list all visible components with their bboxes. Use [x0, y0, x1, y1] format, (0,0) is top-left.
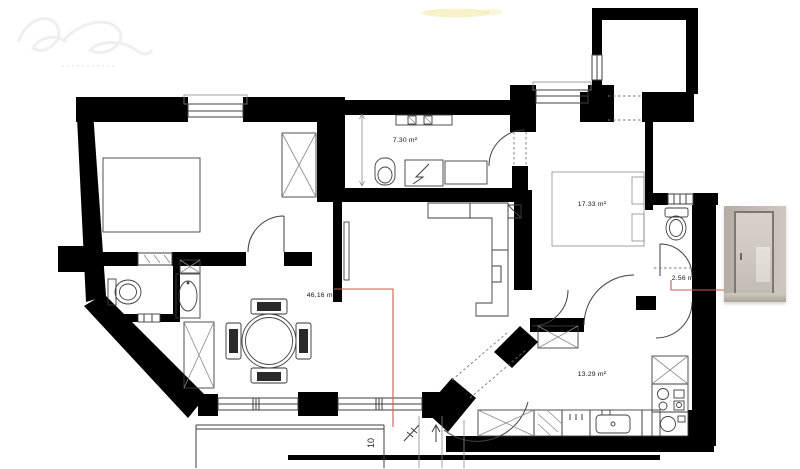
annotations [334, 280, 724, 427]
doors [138, 96, 692, 441]
washing-machine [661, 416, 686, 432]
label-kitchen-area: 13.29 m² [578, 371, 607, 378]
photo-inset [724, 206, 786, 302]
walls [58, 8, 718, 460]
door-arc-wc [660, 244, 692, 276]
chair [296, 323, 311, 359]
dining-table [226, 299, 311, 383]
hall-shelf [396, 115, 452, 125]
kitchen-column [652, 356, 688, 436]
hall-pouf [375, 158, 395, 185]
entrance-step-marks [404, 425, 440, 442]
door-arc-bedroom-left [248, 216, 284, 252]
door-arc-hall [489, 130, 525, 166]
label-bedroom-area: 17.33 m² [578, 201, 607, 208]
bed-left [103, 158, 200, 232]
room-labels: 7.30 m² 17.33 m² 46,16 m² 2.56 m² 13.29 … [307, 137, 697, 448]
door-arc-wc-lower [656, 302, 692, 338]
window-living-b [338, 398, 422, 410]
chair [251, 299, 287, 314]
door-arc-bedroom-kitchen [584, 275, 634, 325]
glass-block-bath [138, 253, 172, 265]
wardrobe-dining [184, 322, 214, 388]
toilet-wc [665, 208, 688, 240]
annotation-line-living [334, 289, 393, 427]
electrical-cabinet [405, 160, 443, 186]
hall-dimension-line [360, 114, 365, 186]
floor-plan-drawing: 7.30 m² 17.33 m² 46,16 m² 2.56 m² 13.29 … [0, 0, 800, 469]
radiator-bath [668, 194, 693, 204]
toilet-bath [108, 279, 141, 305]
furniture [103, 114, 688, 468]
bath-door-threshold [138, 314, 160, 322]
hall-console [445, 161, 487, 184]
balcony-bottom [196, 416, 464, 468]
label-hall-area: 7.30 m² [393, 137, 418, 144]
photo-interior-glow [756, 247, 770, 282]
corner-sofa [428, 203, 521, 316]
window-living-a [218, 398, 298, 410]
label-wc-area: 2.56 m² [672, 275, 697, 282]
tv-panel [344, 222, 349, 280]
highlight-smudge [422, 9, 502, 18]
label-dimension-10: 10 [366, 438, 376, 448]
lightning-icon [413, 164, 429, 184]
photo-door-handle [740, 253, 742, 260]
photo-floor [724, 293, 786, 302]
window-bedroom-left [184, 95, 247, 117]
window-balcony [592, 55, 602, 80]
stove [658, 389, 685, 411]
watermark-logo [18, 19, 152, 66]
kitchen-counter [478, 410, 660, 436]
label-living-area: 46,16 m² [307, 292, 336, 299]
floor-plan-page: 7.30 m² 17.33 m² 46,16 m² 2.56 m² 13.29 … [0, 0, 800, 469]
photo-door [734, 211, 774, 299]
wardrobe-bedroom-left [282, 133, 316, 197]
chair [226, 323, 241, 359]
kitchen-sink [596, 415, 630, 433]
chair [251, 368, 287, 383]
bed-right [552, 172, 644, 246]
